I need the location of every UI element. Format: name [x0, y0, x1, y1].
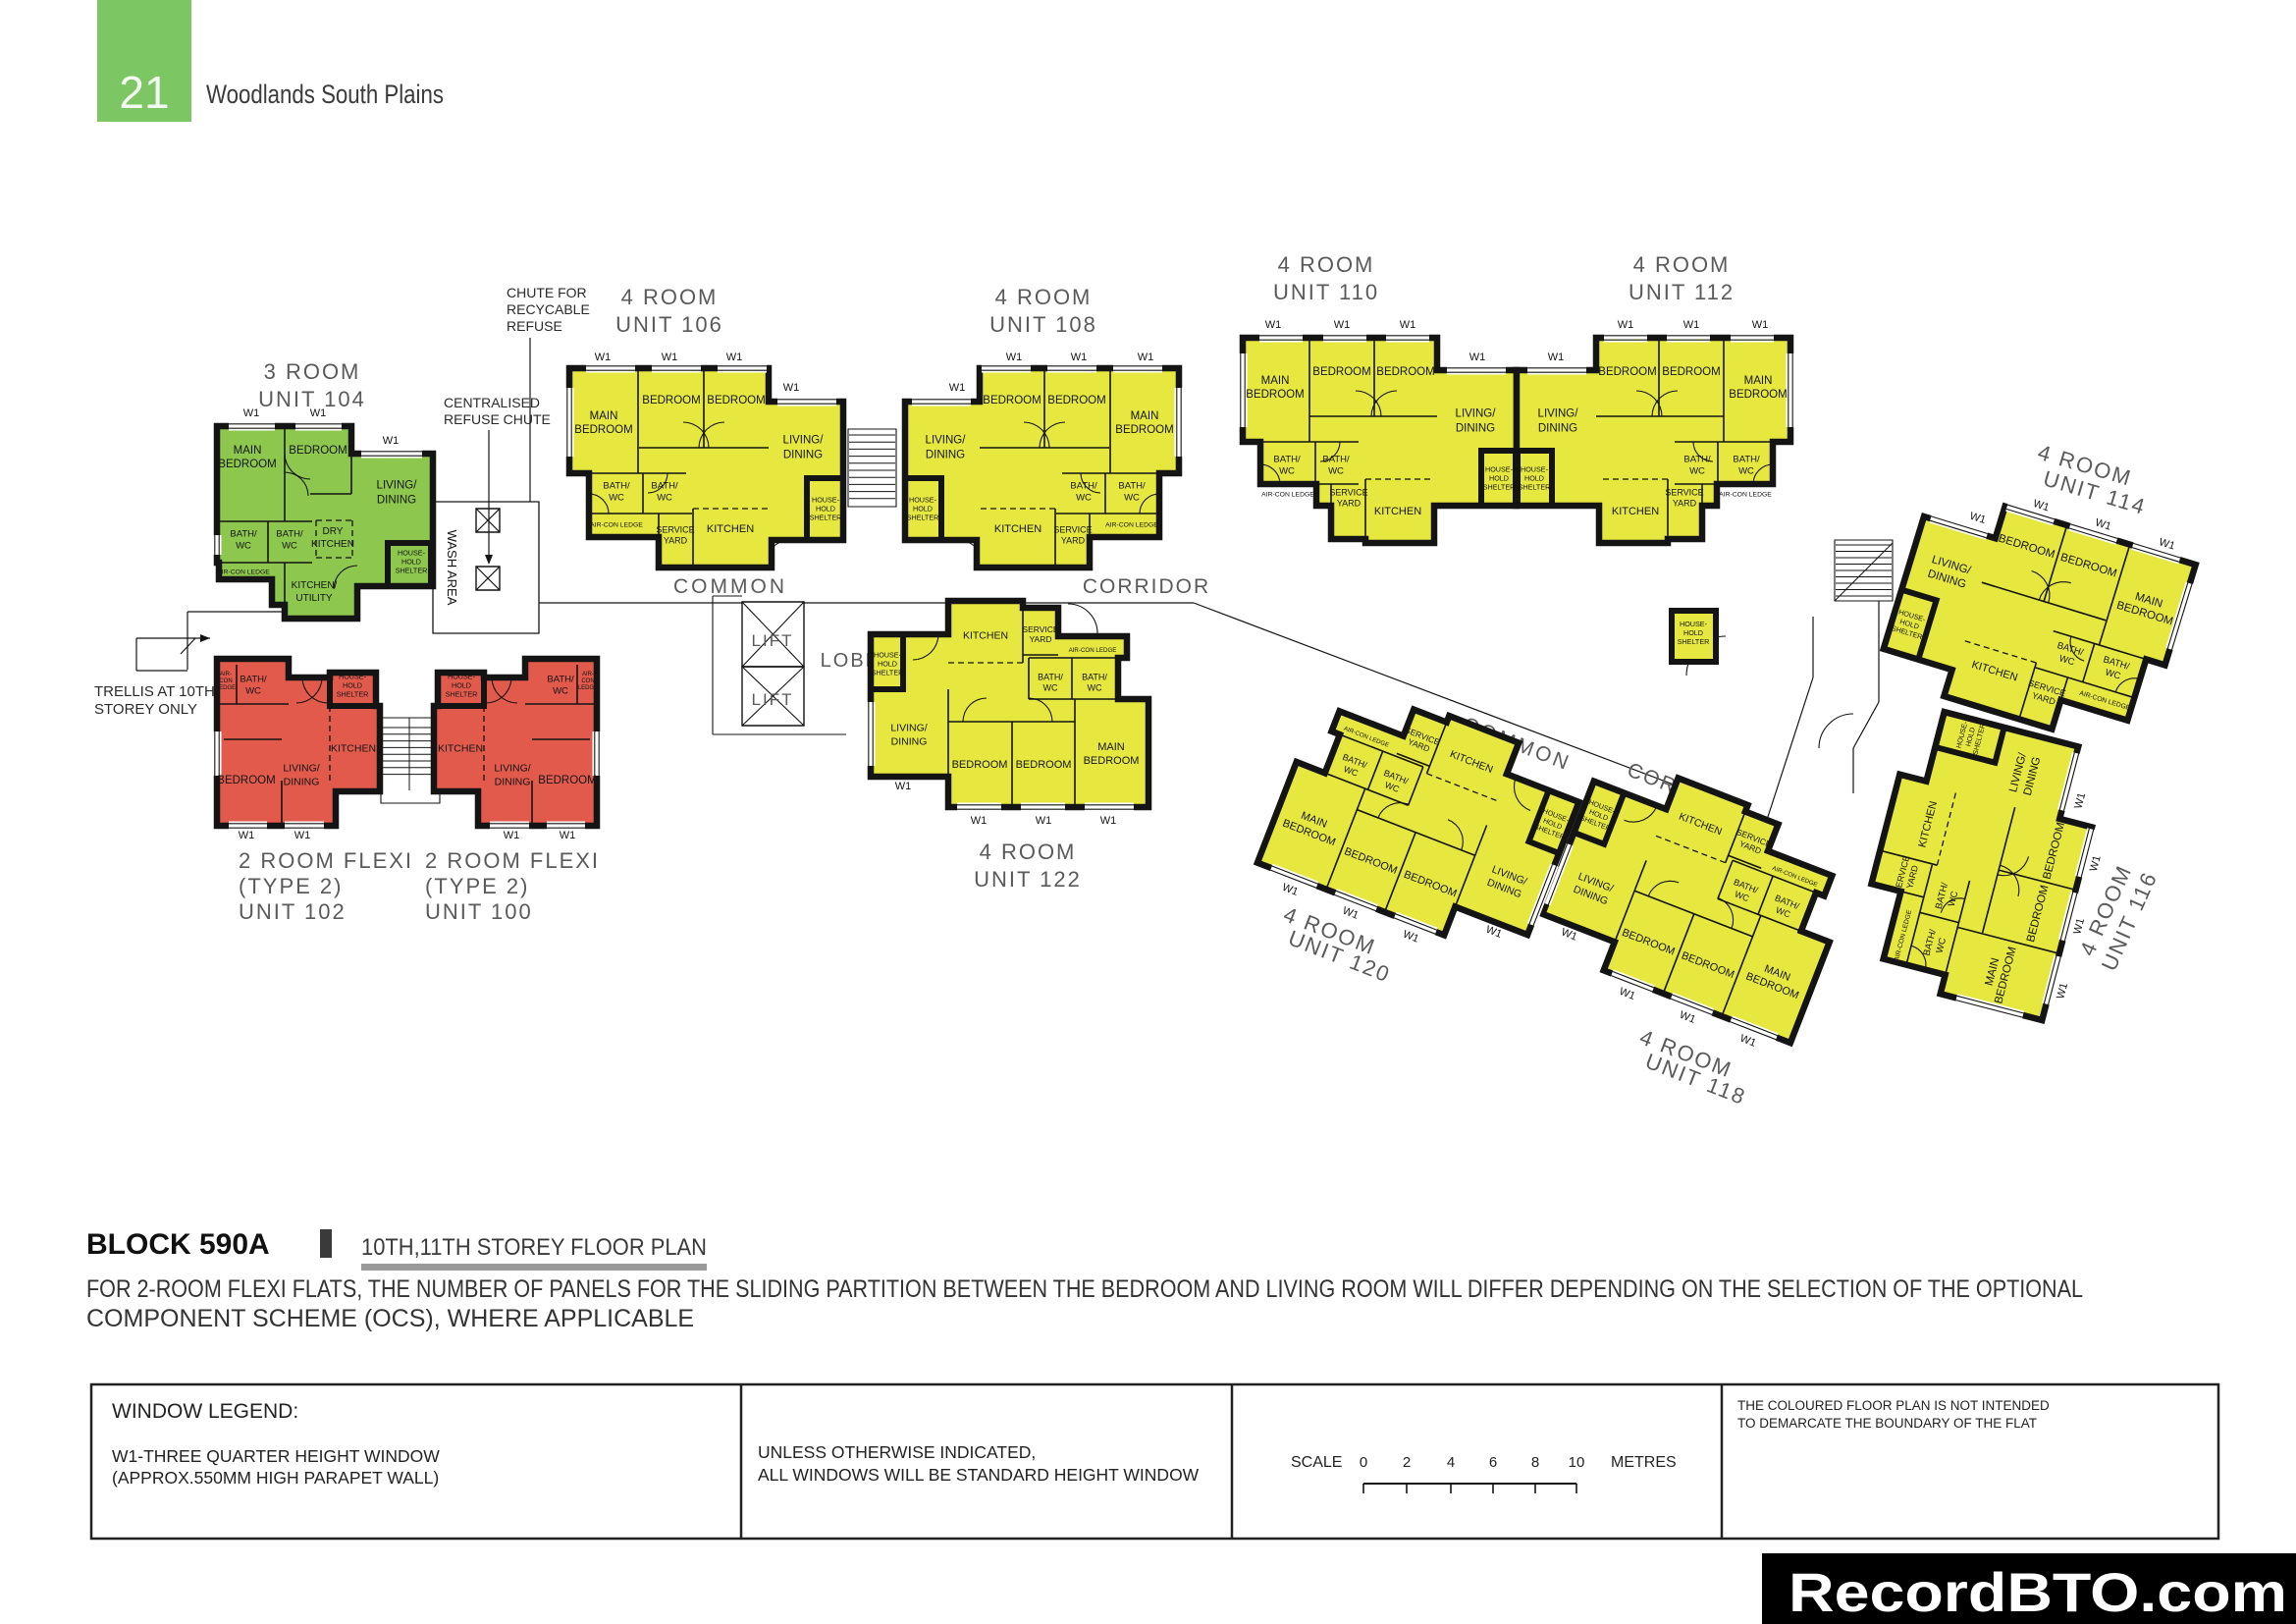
svg-text:SHELTER: SHELTER [810, 514, 842, 522]
svg-text:DINING: DINING [377, 495, 416, 507]
svg-text:YARD: YARD [1030, 634, 1052, 644]
svg-text:HOUSE-: HOUSE- [398, 549, 426, 558]
svg-text:SHELTER: SHELTER [872, 669, 904, 677]
svg-text:BEDROOM: BEDROOM [1115, 424, 1173, 436]
svg-text:HOLD: HOLD [1489, 474, 1509, 483]
svg-text:HOUSE-: HOUSE- [812, 496, 840, 505]
svg-text:LEDGE: LEDGE [578, 685, 598, 691]
svg-text:LEDGE: LEDGE [216, 685, 236, 691]
svg-text:WC: WC [657, 492, 672, 503]
svg-text:TRELLIS AT 10TH: TRELLIS AT 10TH [94, 683, 215, 700]
svg-text:BATH/: BATH/ [603, 480, 630, 491]
svg-text:AIR-CON LEDGE: AIR-CON LEDGE [590, 521, 643, 528]
svg-text:BATH/: BATH/ [1683, 454, 1711, 464]
svg-text:BEDROOM: BEDROOM [1084, 755, 1140, 767]
svg-text:W1: W1 [1618, 319, 1634, 331]
svg-text:CENTRALISED: CENTRALISED [444, 395, 540, 410]
svg-text:UNIT 104: UNIT 104 [258, 387, 366, 411]
svg-text:AIR-: AIR- [220, 672, 232, 677]
svg-text:KITCHEN: KITCHEN [331, 743, 376, 755]
svg-text:W1: W1 [971, 815, 988, 827]
svg-text:8: 8 [1531, 1454, 1539, 1471]
svg-text:SERVICE: SERVICE [1022, 624, 1058, 634]
svg-text:SERVICE: SERVICE [1665, 488, 1703, 498]
svg-text:UNIT 112: UNIT 112 [1629, 280, 1735, 304]
svg-text:BEDROOM: BEDROOM [642, 395, 700, 406]
svg-text:BATH/: BATH/ [1733, 454, 1760, 464]
svg-text:(TYPE 2): (TYPE 2) [239, 874, 343, 898]
svg-text:BEDROOM: BEDROOM [1598, 366, 1656, 378]
svg-text:Woodlands South Plains: Woodlands South Plains [206, 80, 444, 109]
svg-text:AIR-CON LEDGE: AIR-CON LEDGE [1105, 521, 1158, 528]
svg-text:BATH/: BATH/ [240, 674, 267, 684]
svg-text:COMMON: COMMON [673, 575, 787, 598]
svg-text:HOLD: HOLD [816, 505, 835, 514]
svg-text:UNIT 106: UNIT 106 [615, 312, 723, 337]
svg-text:UNIT 122: UNIT 122 [974, 867, 1082, 892]
svg-text:6: 6 [1489, 1454, 1497, 1471]
svg-text:BATH/: BATH/ [1038, 673, 1063, 682]
svg-text:BEDROOM: BEDROOM [218, 459, 276, 470]
svg-text:BEDROOM: BEDROOM [1246, 389, 1304, 401]
svg-text:WC: WC [245, 685, 261, 696]
svg-text:BEDROOM: BEDROOM [1016, 759, 1072, 771]
svg-text:DINING: DINING [495, 777, 531, 788]
svg-text:HOLD: HOLD [1524, 474, 1544, 483]
svg-text:3 ROOM: 3 ROOM [264, 359, 361, 384]
svg-text:HOUSE-: HOUSE- [874, 651, 902, 660]
svg-text:TO DEMARCATE THE BOUNDARY OF T: TO DEMARCATE THE BOUNDARY OF THE FLAT [1737, 1416, 2037, 1431]
svg-text:COMPONENT SCHEME (OCS), WHERE: COMPONENT SCHEME (OCS), WHERE APPLICABLE [86, 1305, 694, 1332]
svg-text:W1: W1 [504, 830, 520, 841]
svg-text:HOLD: HOLD [913, 505, 933, 514]
svg-text:21: 21 [119, 67, 169, 118]
svg-text:W1: W1 [1138, 352, 1154, 363]
svg-text:ALL WINDOWS WILL BE STANDARD H: ALL WINDOWS WILL BE STANDARD HEIGHT WIND… [758, 1465, 1200, 1485]
svg-text:W1: W1 [1100, 815, 1117, 827]
svg-text:BEDROOM: BEDROOM [1729, 389, 1787, 401]
svg-text:BEDROOM: BEDROOM [1662, 366, 1720, 378]
svg-text:RecordBTO.com: RecordBTO.com [1789, 1561, 2287, 1623]
svg-text:KITCHEN: KITCHEN [1612, 506, 1659, 517]
svg-text:(TYPE 2): (TYPE 2) [425, 874, 529, 898]
svg-text:AIR-CON LEDGE: AIR-CON LEDGE [1719, 491, 1772, 498]
svg-text:DINING: DINING [926, 450, 965, 461]
svg-text:MAIN: MAIN [1097, 741, 1125, 753]
svg-text:W1: W1 [1334, 319, 1351, 331]
svg-text:LIFT: LIFT [752, 631, 794, 650]
svg-text:REFUSE CHUTE: REFUSE CHUTE [444, 411, 551, 427]
svg-text:W1: W1 [294, 830, 311, 841]
svg-text:SHELTER: SHELTER [1483, 483, 1516, 492]
svg-text:HOUSE-: HOUSE- [448, 673, 476, 681]
svg-text:W1: W1 [383, 435, 400, 447]
svg-text:W1: W1 [895, 781, 912, 792]
svg-text:BEDROOM: BEDROOM [538, 775, 596, 786]
svg-text:W1: W1 [1265, 319, 1282, 331]
svg-text:WC: WC [1088, 683, 1102, 693]
svg-text:UNLESS OTHERWISE INDICATED,: UNLESS OTHERWISE INDICATED, [758, 1442, 1036, 1462]
svg-text:HOUSE-: HOUSE- [909, 496, 937, 505]
svg-text:BEDROOM: BEDROOM [574, 424, 632, 436]
svg-text:AIR-CON LEDGE: AIR-CON LEDGE [217, 568, 270, 575]
svg-text:UNIT 108: UNIT 108 [989, 312, 1097, 337]
svg-text:WC: WC [1076, 492, 1092, 503]
svg-text:KITCHEN: KITCHEN [994, 523, 1041, 535]
svg-text:YARD: YARD [664, 536, 688, 546]
svg-text:MAIN: MAIN [1131, 410, 1159, 422]
svg-text:AIR-: AIR- [582, 672, 594, 677]
svg-text:BATH/: BATH/ [276, 528, 303, 539]
svg-text:W1: W1 [662, 352, 678, 363]
svg-text:4 ROOM: 4 ROOM [980, 839, 1077, 864]
svg-text:KITCHEN: KITCHEN [963, 630, 1008, 642]
svg-text:SHELTER: SHELTER [907, 514, 939, 522]
svg-text:MAIN: MAIN [1744, 375, 1773, 387]
svg-text:W1: W1 [1752, 319, 1769, 331]
svg-text:BEDROOM: BEDROOM [952, 759, 1008, 771]
svg-text:KITCHEN: KITCHEN [1374, 506, 1421, 517]
svg-text:W1: W1 [726, 352, 743, 363]
svg-text:BATH/: BATH/ [547, 674, 574, 684]
svg-text:10TH,11TH STOREY FLOOR PLAN: 10TH,11TH STOREY FLOOR PLAN [361, 1234, 707, 1261]
svg-text:HOUSE-: HOUSE- [1680, 620, 1708, 628]
svg-text:BATH/: BATH/ [651, 480, 678, 491]
svg-text:HOUSE-: HOUSE- [1485, 465, 1514, 474]
svg-text:DINING: DINING [1538, 423, 1577, 435]
svg-text:W1-THREE QUARTER HEIGHT WINDOW: W1-THREE QUARTER HEIGHT WINDOW [112, 1446, 440, 1466]
svg-text:RECYCABLE: RECYCABLE [507, 301, 590, 317]
svg-text:SERVICE: SERVICE [1053, 525, 1092, 535]
svg-text:KITCHEN: KITCHEN [707, 523, 754, 535]
svg-text:BEDROOM: BEDROOM [707, 395, 765, 406]
svg-text:LIVING/: LIVING/ [494, 763, 530, 775]
svg-text:HOLD: HOLD [452, 681, 471, 690]
svg-text:BATH/: BATH/ [230, 528, 257, 539]
svg-text:WASH AREA: WASH AREA [445, 530, 459, 606]
svg-text:UNIT 102: UNIT 102 [239, 899, 347, 924]
svg-text:WC: WC [553, 685, 568, 696]
svg-text:W1: W1 [1683, 319, 1700, 331]
svg-text:BATH/: BATH/ [1273, 454, 1301, 464]
svg-text:LIFT: LIFT [752, 690, 794, 709]
svg-text:(APPROX.550MM HIGH PARAPET WAL: (APPROX.550MM HIGH PARAPET WALL) [112, 1468, 439, 1488]
svg-text:YARD: YARD [1337, 499, 1362, 509]
svg-text:AIR-CON LEDGE: AIR-CON LEDGE [1069, 647, 1117, 654]
svg-text:W1: W1 [949, 382, 966, 394]
svg-text:W1: W1 [243, 407, 260, 419]
svg-text:CORRIDOR: CORRIDOR [1083, 575, 1210, 598]
svg-text:HOLD: HOLD [878, 660, 897, 669]
svg-text:BEDROOM: BEDROOM [1376, 366, 1434, 378]
svg-text:BEDROOM: BEDROOM [289, 445, 347, 457]
svg-text:DINING: DINING [284, 777, 320, 788]
svg-text:MAIN: MAIN [1261, 375, 1290, 387]
svg-text:WC: WC [1124, 492, 1140, 503]
svg-text:REFUSE: REFUSE [507, 318, 562, 334]
svg-text:BEDROOM: BEDROOM [1047, 395, 1105, 406]
svg-text:BATH/: BATH/ [1070, 480, 1097, 491]
svg-text:WC: WC [1738, 465, 1754, 476]
svg-text:SHELTER: SHELTER [1519, 483, 1551, 492]
svg-text:WINDOW LEGEND:: WINDOW LEGEND: [112, 1400, 298, 1423]
svg-text:4: 4 [1447, 1454, 1455, 1471]
svg-text:W1: W1 [239, 830, 255, 841]
svg-text:WC: WC [1043, 683, 1058, 693]
svg-text:WC: WC [236, 540, 251, 551]
svg-text:KITCHEN: KITCHEN [311, 539, 354, 550]
svg-text:DINING: DINING [891, 736, 928, 748]
svg-text:HOLD: HOLD [1683, 628, 1703, 637]
svg-text:2 ROOM FLEXI: 2 ROOM FLEXI [239, 848, 413, 873]
svg-text:BEDROOM: BEDROOM [983, 395, 1041, 406]
svg-text:SHELTER: SHELTER [1678, 637, 1710, 646]
svg-text:LIVING/: LIVING/ [890, 723, 927, 734]
svg-text:0: 0 [1360, 1454, 1367, 1471]
svg-text:4 ROOM: 4 ROOM [1278, 252, 1375, 277]
svg-text:LIVING/: LIVING/ [926, 435, 967, 447]
svg-text:2: 2 [1403, 1454, 1411, 1471]
svg-text:BATH/: BATH/ [1118, 480, 1146, 491]
svg-text:BEDROOM: BEDROOM [217, 775, 275, 786]
svg-text:AIR-CON LEDGE: AIR-CON LEDGE [1261, 491, 1314, 498]
svg-text:W1: W1 [1036, 815, 1052, 827]
svg-text:BATH/: BATH/ [1082, 673, 1107, 682]
svg-text:SCALE: SCALE [1291, 1454, 1342, 1471]
svg-text:WC: WC [1328, 465, 1344, 476]
svg-text:UTILITY: UTILITY [295, 593, 333, 604]
svg-text:LIVING/: LIVING/ [783, 435, 825, 447]
svg-text:4 ROOM: 4 ROOM [621, 285, 719, 309]
svg-text:W1: W1 [1071, 352, 1088, 363]
svg-text:LIVING/: LIVING/ [283, 763, 319, 775]
svg-text:THE COLOURED FLOOR PLAN IS NOT: THE COLOURED FLOOR PLAN IS NOT INTENDED [1737, 1398, 2050, 1413]
svg-text:W1: W1 [1006, 352, 1023, 363]
svg-text:YARD: YARD [1673, 499, 1697, 509]
svg-text:CON: CON [581, 678, 594, 684]
svg-text:FOR 2-ROOM FLEXI FLATS, THE NU: FOR 2-ROOM FLEXI FLATS, THE NUMBER OF PA… [86, 1275, 2083, 1303]
svg-text:LIVING/: LIVING/ [1456, 408, 1497, 420]
svg-text:4 ROOM: 4 ROOM [995, 285, 1093, 309]
svg-text:SHELTER: SHELTER [337, 690, 369, 699]
svg-text:W1: W1 [560, 830, 576, 841]
svg-text:STOREY ONLY: STOREY ONLY [94, 701, 197, 718]
svg-text:SERVICE: SERVICE [1329, 488, 1367, 498]
svg-text:BEDROOM: BEDROOM [1312, 366, 1370, 378]
svg-text:CHUTE FOR: CHUTE FOR [507, 285, 587, 300]
svg-text:SERVICE: SERVICE [656, 525, 694, 535]
svg-text:WC: WC [609, 492, 624, 503]
svg-text:W1: W1 [1400, 319, 1416, 331]
svg-text:WC: WC [1689, 465, 1705, 476]
svg-text:CON: CON [219, 678, 232, 684]
svg-text:KITCHEN: KITCHEN [438, 743, 483, 755]
svg-text:W1: W1 [595, 352, 612, 363]
svg-text:WC: WC [282, 540, 297, 551]
svg-text:BATH/: BATH/ [1322, 454, 1350, 464]
svg-text:DINING: DINING [1456, 423, 1495, 435]
svg-text:MAIN: MAIN [590, 410, 618, 422]
svg-text:LIVING/: LIVING/ [1538, 408, 1579, 420]
svg-text:W1: W1 [1469, 352, 1486, 363]
svg-text:MAIN: MAIN [234, 445, 262, 457]
svg-text:HOLD: HOLD [401, 558, 421, 567]
svg-text:UNIT 110: UNIT 110 [1273, 280, 1379, 304]
svg-text:DINING: DINING [783, 450, 823, 461]
svg-text:UNIT 100: UNIT 100 [425, 899, 533, 924]
svg-text:YARD: YARD [1061, 536, 1086, 546]
svg-text:SHELTER: SHELTER [396, 567, 428, 575]
svg-text:2 ROOM FLEXI: 2 ROOM FLEXI [425, 848, 600, 873]
svg-text:METRES: METRES [1611, 1454, 1677, 1471]
svg-text:LIVING/: LIVING/ [377, 480, 418, 492]
svg-text:4 ROOM: 4 ROOM [1633, 252, 1731, 277]
svg-text:KITCHEN/: KITCHEN/ [292, 580, 338, 591]
svg-text:BLOCK 590A: BLOCK 590A [86, 1228, 270, 1261]
svg-text:DRY: DRY [323, 526, 344, 537]
svg-text:W1: W1 [783, 382, 800, 394]
svg-text:10: 10 [1569, 1454, 1585, 1471]
svg-text:SHELTER: SHELTER [446, 690, 478, 699]
svg-text:HOUSE-: HOUSE- [1521, 465, 1549, 474]
svg-text:WC: WC [1279, 465, 1295, 476]
svg-text:HOLD: HOLD [343, 681, 362, 690]
svg-text:HOUSE-: HOUSE- [339, 673, 367, 681]
svg-text:W1: W1 [1548, 352, 1565, 363]
